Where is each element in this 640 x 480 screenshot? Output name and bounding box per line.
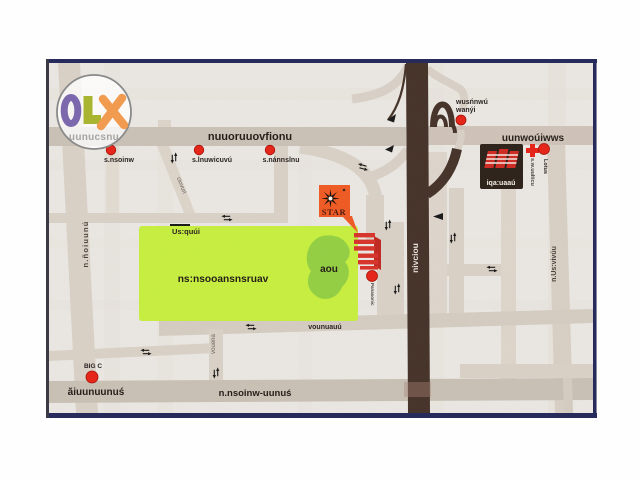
svg-text:uunucsnu: uunucsnu (69, 132, 119, 143)
